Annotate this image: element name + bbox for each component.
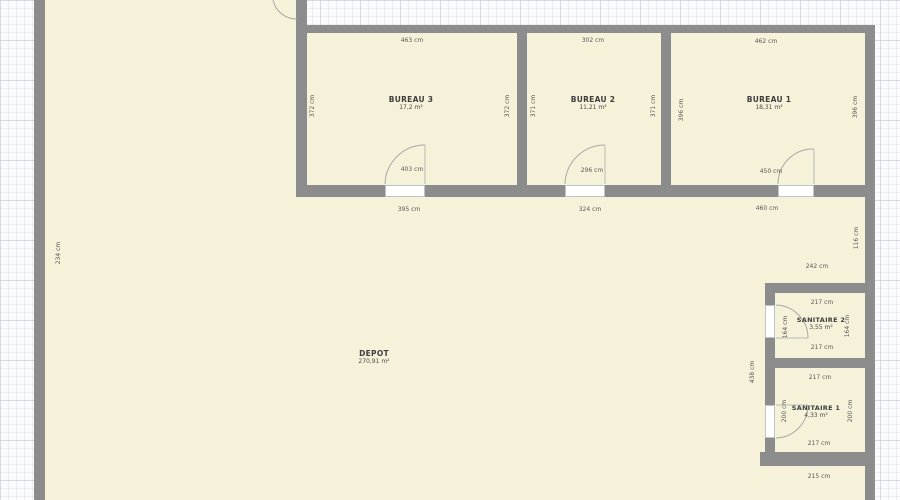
room-label-depot: DEPOT 270,91 m² (358, 350, 389, 365)
dim-label: 371 cm (651, 95, 657, 118)
door-arcs-layer (0, 0, 900, 500)
dim-label: 438 cm (750, 361, 756, 384)
room-name: DEPOT (358, 350, 389, 358)
door-arc (778, 149, 814, 184)
room-label-bureau1: BUREAU 1 18,31 m² (747, 96, 792, 111)
dim-label: 116 cm (854, 227, 860, 250)
door-arc (565, 145, 605, 184)
dim-label: 200 cm (782, 400, 788, 423)
room-name: SANITAIRE 1 (792, 404, 840, 412)
dim-label: 460 cm (756, 206, 779, 212)
room-name: BUREAU 3 (389, 96, 434, 104)
room-label-sanitaire1: SANITAIRE 1 4,33 m² (792, 404, 840, 419)
dim-label: 164 cm (845, 315, 851, 338)
door-arc (273, 0, 297, 19)
dim-label: 462 cm (755, 39, 778, 45)
room-area: 18,31 m² (747, 104, 792, 111)
room-name: SANITAIRE 2 (797, 316, 845, 324)
dim-label: 372 cm (505, 95, 511, 118)
dim-label: 164 cm (783, 316, 789, 339)
dim-label: 396 cm (853, 96, 859, 119)
door-arc-top-entry[interactable] (273, 0, 297, 19)
plan-canvas[interactable]: BUREAU 3 17,2 m² BUREAU 2 11,21 m² BUREA… (0, 0, 900, 500)
dim-label: 302 cm (582, 38, 605, 44)
room-area: 4,33 m² (792, 412, 840, 419)
room-label-bureau2: BUREAU 2 11,21 m² (571, 96, 616, 111)
door-bureau2[interactable] (565, 145, 605, 184)
room-area: 3,55 m² (797, 324, 845, 331)
dim-label: 403 cm (401, 167, 424, 173)
dim-label: 450 cm (760, 169, 783, 175)
dim-label: 324 cm (579, 207, 602, 213)
room-label-bureau3: BUREAU 3 17,2 m² (389, 96, 434, 111)
dim-label: 217 cm (811, 300, 834, 306)
dim-label: 371 cm (531, 95, 537, 118)
dim-label: 396 cm (679, 99, 685, 122)
dim-label: 200 cm (848, 400, 854, 423)
dim-label: 215 cm (808, 474, 831, 480)
dim-label: 217 cm (808, 441, 831, 447)
door-arc (385, 145, 425, 184)
room-label-sanitaire2: SANITAIRE 2 3,55 m² (797, 316, 845, 331)
door-bureau1[interactable] (778, 149, 814, 184)
dim-label: 234 cm (56, 242, 62, 265)
dim-label: 372 cm (310, 95, 316, 118)
dim-label: 296 cm (581, 168, 604, 174)
dim-label: 463 cm (401, 38, 424, 44)
room-name: BUREAU 2 (571, 96, 616, 104)
dim-label: 217 cm (811, 345, 834, 351)
dim-label: 395 cm (398, 207, 421, 213)
room-area: 11,21 m² (571, 104, 616, 111)
dim-label: 217 cm (809, 375, 832, 381)
room-name: BUREAU 1 (747, 96, 792, 104)
door-bureau3[interactable] (385, 145, 425, 184)
dim-label: 242 cm (806, 264, 829, 270)
room-area: 270,91 m² (358, 358, 389, 365)
room-area: 17,2 m² (389, 104, 434, 111)
